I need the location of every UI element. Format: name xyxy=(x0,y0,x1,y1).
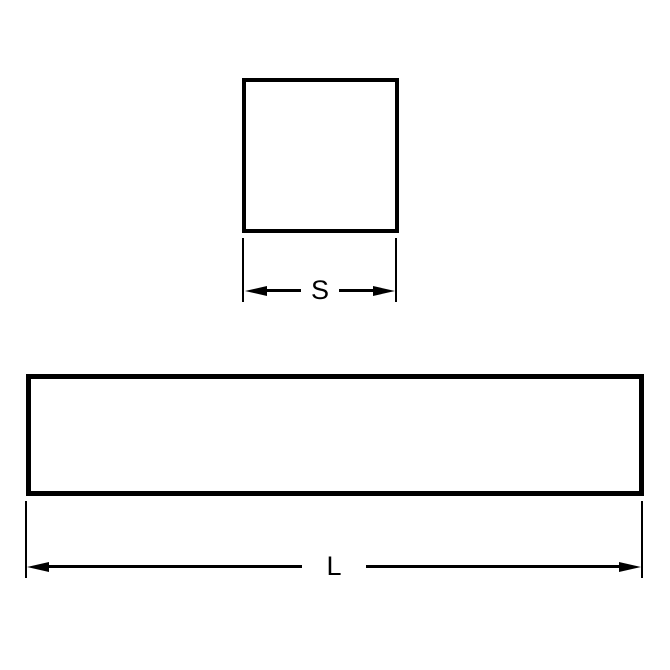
arrowhead-right-icon xyxy=(373,286,395,296)
l-extension-line-right xyxy=(641,501,643,578)
s-dimension-line-left xyxy=(267,289,301,292)
s-extension-line-right xyxy=(395,238,397,302)
l-dimension-line-left xyxy=(49,565,302,568)
arrowhead-left-icon xyxy=(245,286,267,296)
s-dimension-line-right xyxy=(339,289,373,292)
square-cross-section-outline xyxy=(242,78,399,233)
dimension-label-l: L xyxy=(302,553,365,580)
dimension-s-group: S xyxy=(245,277,395,304)
dimension-l-group: L xyxy=(27,553,641,580)
l-dimension-line-right xyxy=(366,565,619,568)
arrowhead-left-icon xyxy=(27,562,49,572)
bar-length-outline xyxy=(26,374,644,496)
s-extension-line-left xyxy=(242,238,244,302)
arrowhead-right-icon xyxy=(619,562,641,572)
dimension-label-s: S xyxy=(301,277,339,304)
keysteel-dimension-drawing: S L xyxy=(0,0,670,670)
